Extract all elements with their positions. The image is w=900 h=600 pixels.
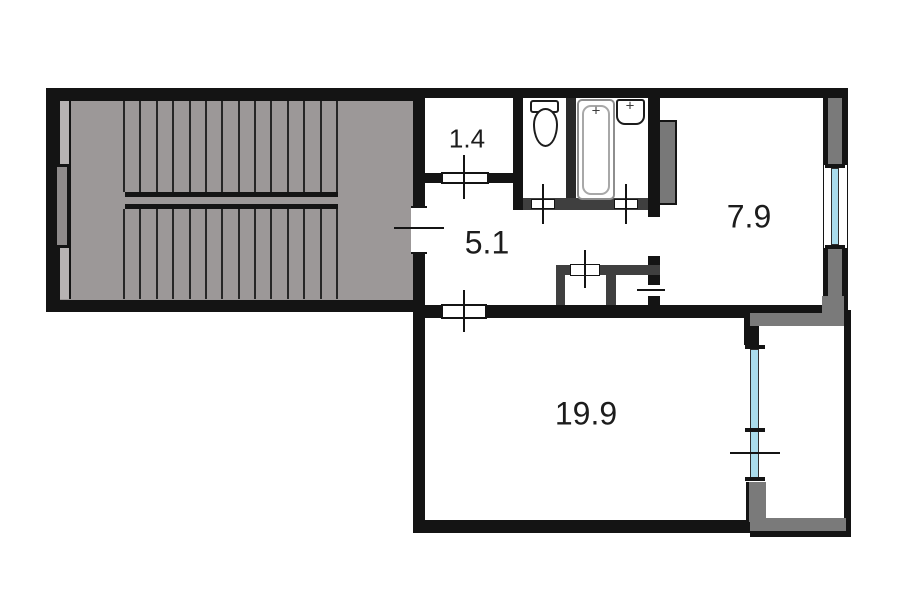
r79-window [831,168,839,245]
stair-tread [205,209,207,299]
stair-tread [254,101,256,192]
stair-tread [287,101,289,192]
r199-window-divider [745,428,765,432]
bathtub-faucet-icon: + [592,104,601,119]
wall-r199-left [413,305,425,533]
stair-tread [336,209,338,299]
wall-closet-divider [606,275,616,306]
stair-tread [238,101,240,192]
stair-tread [320,209,322,299]
stair-tread [336,101,338,192]
balcony-wall-bottom-edge [750,531,851,537]
entrance-door-tick [394,227,444,229]
r79-window-jamb-bottom [825,245,845,249]
stair-tread [156,101,158,192]
closet-right-door-tick [637,289,665,291]
balcony-wall-top [750,313,844,326]
stair-tread [189,209,191,299]
stair-tread [303,101,305,192]
r14-door [441,172,489,184]
r199-window [750,349,759,478]
closet-left-door-tick [584,250,586,288]
stair-tread [123,209,125,299]
room-label-5-1: 5.1 [465,225,509,262]
wall-wc-bath-partition [566,98,576,201]
balcony-pier [746,482,766,522]
stair-stringer-top [125,192,338,197]
stair-tread [139,101,141,192]
stair-tread [287,209,289,299]
stair-tread [172,209,174,299]
wall-closet-left [556,275,565,306]
wall-r79-right-fill-upper [828,98,842,165]
wall-r14-right [513,98,523,210]
room-label-7-9: 7.9 [727,199,771,236]
balcony-wall-bottom [750,518,846,532]
r79-window-jamb-top [825,164,845,168]
stair-tread [172,101,174,192]
wall-stairwell-bottom [46,300,425,312]
entrance-door [411,206,427,254]
sink-faucet-icon: + [626,99,635,114]
balcony-wall-right [844,310,851,537]
r14-door-tick [463,155,465,199]
stair-flight-upper [123,101,338,192]
wall-left [46,88,57,312]
r199-window-jamb-bottom [745,477,765,481]
wall-top [46,88,848,98]
stair-tread [221,101,223,192]
stair-tread [254,209,256,299]
stair-tread [139,209,141,299]
wall-r79-left-upper [648,88,660,215]
floor-plan: + + 1.4 5.1 7.9 19.9 [0,0,900,600]
wall-entry-lower [413,254,425,312]
stair-tread [270,101,272,192]
stair-flight-lower [123,209,338,299]
r79-door [648,215,660,258]
stair-tread [270,209,272,299]
r199-door-tick [463,290,465,332]
balcony-door-tick [730,452,780,454]
stair-tread [189,101,191,192]
stair-tread [221,209,223,299]
stair-tread [123,101,125,192]
r199-window-jamb-top [745,345,765,349]
stair-tread [238,209,240,299]
stair-tread [205,101,207,192]
stair-stringer-bottom [125,204,338,209]
wall-r199-right-upper [744,305,759,347]
toilet-bowl-icon [533,108,558,147]
bath-door-tick [625,184,627,224]
room-label-19-9: 19.9 [555,396,617,433]
stair-tread [156,209,158,299]
room-label-1-4: 1.4 [449,124,485,155]
wall-r79-right-fill-lower [828,248,842,303]
wall-r199-bottom [413,520,759,533]
wall-entry-upper [413,88,425,206]
stair-tread [320,101,322,192]
vent-shaft [660,120,677,205]
stair-tread [303,209,305,299]
wc-door-tick [542,184,544,224]
